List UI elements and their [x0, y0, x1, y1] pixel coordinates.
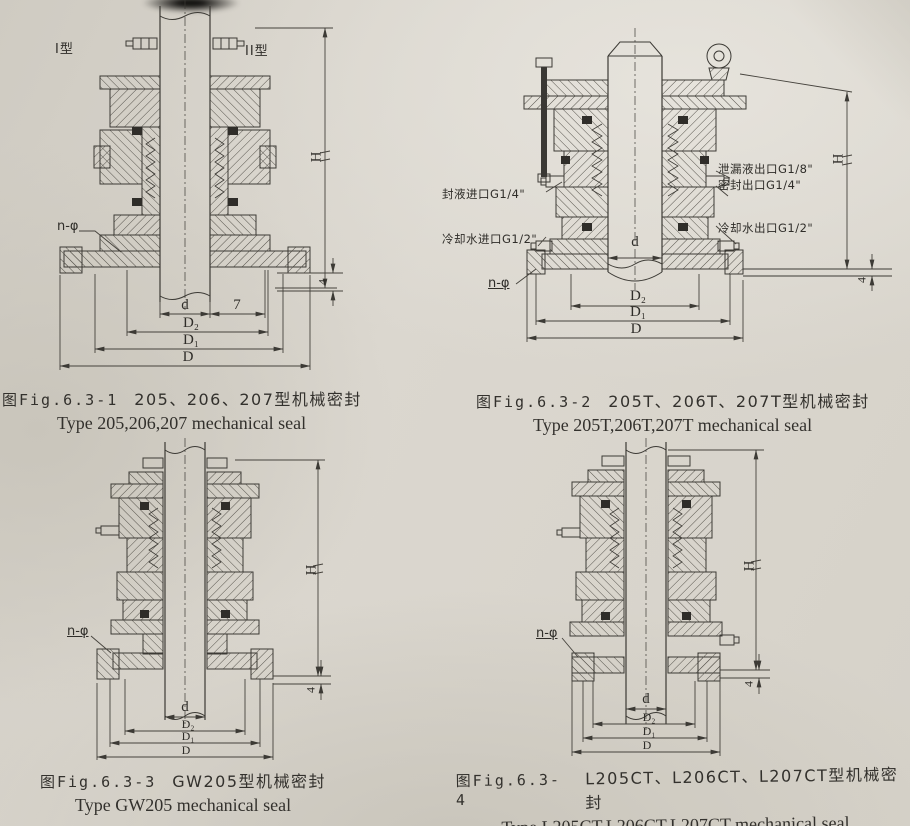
figure-1-caption-line1: 图Fig.6.3-1 205、206、207型机械密封	[2, 386, 442, 410]
caption-title-en: Type GW205 mechanical seal	[40, 795, 400, 816]
port-label-cooling-water-inlet: 冷却水进口G1/2"	[442, 231, 537, 247]
figure-4-caption-line1: 图Fig.6.3-4 L205CT、L206CT、L207CT型机械密封	[456, 761, 909, 815]
caption-title-zh: L205CT、L206CT、L207CT型机械密封	[585, 761, 908, 813]
seal-assembly-half	[210, 38, 310, 273]
dim-label-d2: D₂	[183, 315, 199, 332]
dim-label-d1: D₁	[183, 332, 199, 349]
seal-cross-section	[60, 0, 343, 370]
shaft	[160, 0, 210, 310]
n-phi-label: n-φ	[488, 276, 510, 291]
type-i-label: I型	[55, 38, 74, 57]
port-label-leakage-outlet: 泄漏液出口G1/8"	[718, 161, 813, 177]
seal-assembly-half	[207, 458, 273, 679]
caption-title-zh: GW205型机械密封	[172, 768, 326, 792]
figure-2-drawing	[440, 28, 910, 380]
dim-label-d: d	[181, 297, 189, 314]
side-bolt	[96, 526, 119, 535]
type-ii-label: II型	[245, 40, 269, 59]
dim-label-7: 7	[233, 297, 241, 314]
figure-2-caption-line1: 图Fig.6.3-2 205T、206T、207T型机械密封	[476, 388, 910, 412]
caption-title-zh: 205T、206T、207T型机械密封	[608, 388, 869, 412]
dim-label-d: d	[631, 234, 639, 251]
n-phi-label: n-φ	[67, 624, 89, 639]
figure-number: 图Fig.6.3-2	[476, 391, 592, 412]
dim-label-d: d	[642, 691, 650, 708]
dim-label-d: d	[181, 699, 189, 716]
dim-label-h: H	[831, 154, 848, 165]
figure-3-drawing	[55, 438, 355, 764]
dim-label-4: 4	[304, 687, 319, 693]
dim-label-d-outer: D	[182, 743, 191, 758]
seal-cross-section	[557, 438, 770, 756]
caption-title-en: Type 205T,206T,207T mechanical seal	[476, 415, 910, 436]
dim-label-d2: D₂	[630, 288, 646, 305]
figure-3-panel: n-φ H 4 d D₂ D₁ D	[55, 438, 355, 764]
seal-cross-section	[516, 28, 892, 342]
dim-label-h: H	[304, 565, 321, 576]
dim-label-4: 4	[742, 681, 757, 687]
figure-3-caption: 图Fig.6.3-3 GW205型机械密封 Type GW205 mechani…	[40, 768, 400, 816]
dim-label-4: 4	[855, 277, 870, 283]
shaft	[626, 438, 666, 730]
figure-1-caption: 图Fig.6.3-1 205、206、207型机械密封 Type 205,206…	[2, 386, 442, 434]
figure-2-panel: 封液进口G1/4" 冷却水进口G1/2" 泄漏液出口G1/8" 密封出口G1/4…	[440, 28, 910, 380]
figure-number: 图Fig.6.3-4	[456, 769, 570, 810]
n-phi-label: n-φ	[536, 626, 558, 641]
figure-number: 图Fig.6.3-3	[40, 771, 156, 792]
dim-label-d2: D₂	[643, 710, 656, 725]
n-phi-label: n-φ	[57, 219, 79, 234]
caption-title-en: Type 205,206,207 mechanical seal	[2, 413, 442, 434]
figure-1-panel: I型 II型 n-φ H 4 d 7 D₂ D₁ D	[25, 0, 365, 378]
dim-label-h: H	[309, 152, 326, 163]
port-label-cooling-water-outlet: 冷却水出口G1/2"	[718, 220, 813, 236]
port-label-seal-liquid-inlet: 封液进口G1/4"	[442, 186, 525, 202]
port-label-seal-outlet: 密封出口G1/4"	[718, 177, 801, 193]
dim-label-d1: D₁	[630, 304, 646, 321]
dim-label-d1: D₁	[643, 724, 656, 739]
figure-2-caption: 图Fig.6.3-2 205T、206T、207T型机械密封 Type 205T…	[476, 388, 910, 436]
seal-cross-section	[91, 438, 331, 760]
stud-bolt	[536, 58, 552, 182]
figure-4-panel: n-φ H 4 d D₂ D₁ D	[498, 438, 798, 764]
dim-label-d-outer: D	[643, 738, 652, 753]
dim-label-d1: D₁	[182, 729, 195, 744]
figure-4-caption: 图Fig.6.3-4 L205CT、L206CT、L207CT型机械密封 Typ…	[456, 761, 909, 826]
figure-3-caption-line1: 图Fig.6.3-3 GW205型机械密封	[40, 768, 400, 792]
figure-number: 图Fig.6.3-1	[2, 389, 118, 410]
seal-assembly-half	[668, 456, 722, 681]
shaft	[165, 438, 205, 728]
dim-label-h: H	[742, 561, 759, 572]
caption-title-zh: 205、206、207型机械密封	[134, 386, 362, 410]
eye-bolt	[707, 44, 731, 80]
scanned-page: I型 II型 n-φ H 4 d 7 D₂ D₁ D	[0, 0, 910, 826]
dim-label-d-outer: D	[631, 321, 642, 338]
dim-label-4: 4	[316, 279, 331, 285]
dim-label-d-outer: D	[183, 349, 194, 366]
